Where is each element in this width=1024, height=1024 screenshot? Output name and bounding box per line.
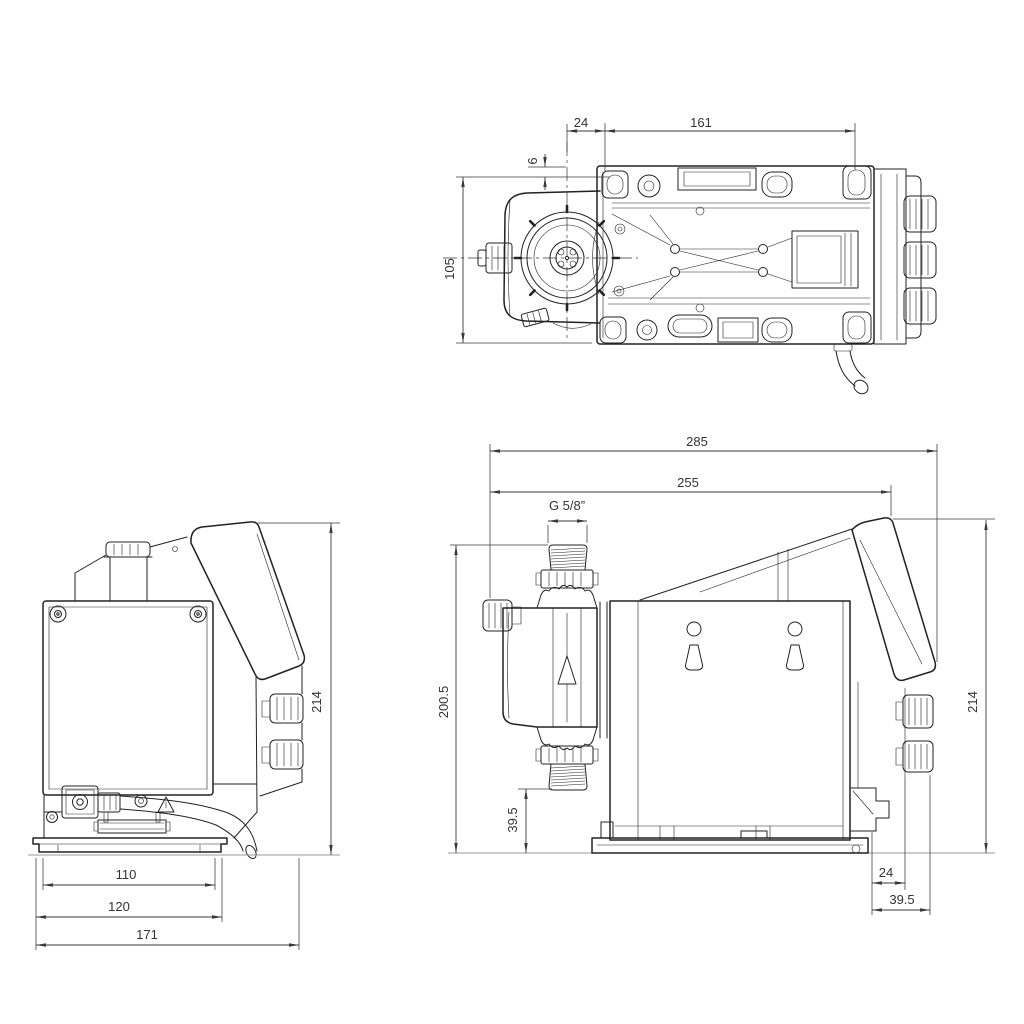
lower-assembly-front xyxy=(44,786,258,860)
rear-bracket xyxy=(850,788,889,853)
dim-label-105: 105 xyxy=(442,258,457,280)
top-flange xyxy=(537,585,597,608)
pump-body-side xyxy=(610,601,850,840)
top-view: 24 161 6 105 xyxy=(442,115,936,397)
dim-label-24-top: 24 xyxy=(574,115,588,130)
dim-label-thread: G 5/8” xyxy=(549,498,585,513)
dim-label-120: 120 xyxy=(108,899,130,914)
technical-drawing-canvas: 24 161 6 105 xyxy=(0,0,1024,1024)
power-cable-front xyxy=(120,796,258,860)
dim-label-255: 255 xyxy=(677,475,699,490)
head-plate-front xyxy=(43,601,213,795)
top-cover-front xyxy=(75,537,187,601)
wall-mount-slot-2 xyxy=(787,622,804,670)
drain-fitting-top xyxy=(521,308,549,327)
dim-label-200-5: 200.5 xyxy=(436,686,451,719)
cable-gland-knob-2 xyxy=(904,242,936,278)
discharge-nut xyxy=(536,570,598,588)
dim-label-24-rear: 24 xyxy=(879,865,893,880)
mount-keyhole-right xyxy=(843,166,871,199)
dim-label-39-5-left: 39.5 xyxy=(505,807,520,832)
drawing-page: 24 161 6 105 xyxy=(0,0,1024,1024)
side-knob-1 xyxy=(896,695,933,728)
side-knob-2 xyxy=(896,741,933,772)
vent-plug xyxy=(106,542,150,557)
side-knob-2-front xyxy=(262,740,303,769)
plate-screw-left xyxy=(50,606,66,622)
clamp-rail xyxy=(94,812,170,833)
flow-arrow xyxy=(558,613,576,722)
dim-label-161: 161 xyxy=(690,115,712,130)
mains-connector xyxy=(62,786,98,818)
pump-head-top xyxy=(478,191,619,328)
front-view: 110 120 171 214 xyxy=(28,522,340,950)
dim-label-171: 171 xyxy=(136,927,158,942)
dim-label-285: 285 xyxy=(686,434,708,449)
cable-gland-knob-1 xyxy=(904,196,936,232)
cable-gland-front xyxy=(98,793,120,812)
base-plate-side xyxy=(592,822,868,853)
suction-nut xyxy=(536,746,598,764)
dim-label-214-side: 214 xyxy=(965,691,980,713)
dosing-head-side xyxy=(483,545,607,790)
rear-side-details xyxy=(850,682,933,853)
top-view-dimensions: 24 161 6 105 xyxy=(442,115,855,343)
discharge-thread xyxy=(549,545,587,570)
wall-mount-slot-1 xyxy=(686,622,703,670)
cable-gland-knob-3 xyxy=(904,288,936,324)
dim-label-6: 6 xyxy=(525,157,540,164)
power-cable-top xyxy=(834,344,871,397)
head-knob-side xyxy=(483,600,521,631)
dim-label-110: 110 xyxy=(116,867,137,882)
plate-ribs xyxy=(612,214,792,300)
side-knob-1-front xyxy=(262,694,303,723)
dim-label-214-front: 214 xyxy=(309,691,324,713)
dim-label-39-5-rear: 39.5 xyxy=(889,892,914,907)
rear-housing-top xyxy=(874,169,936,344)
suction-thread xyxy=(549,764,587,790)
control-console-side xyxy=(640,518,935,681)
mounting-plate-top xyxy=(597,166,874,344)
front-view-dimensions: 110 120 171 214 xyxy=(36,523,340,950)
side-view: 285 255 G 5/8” 200.5 39.5 214 24 39.5 xyxy=(436,434,995,915)
plate-screw-right xyxy=(190,606,206,622)
base-plate-front xyxy=(33,838,227,852)
side-view-dimensions: 285 255 G 5/8” 200.5 39.5 214 24 39.5 xyxy=(436,434,995,915)
